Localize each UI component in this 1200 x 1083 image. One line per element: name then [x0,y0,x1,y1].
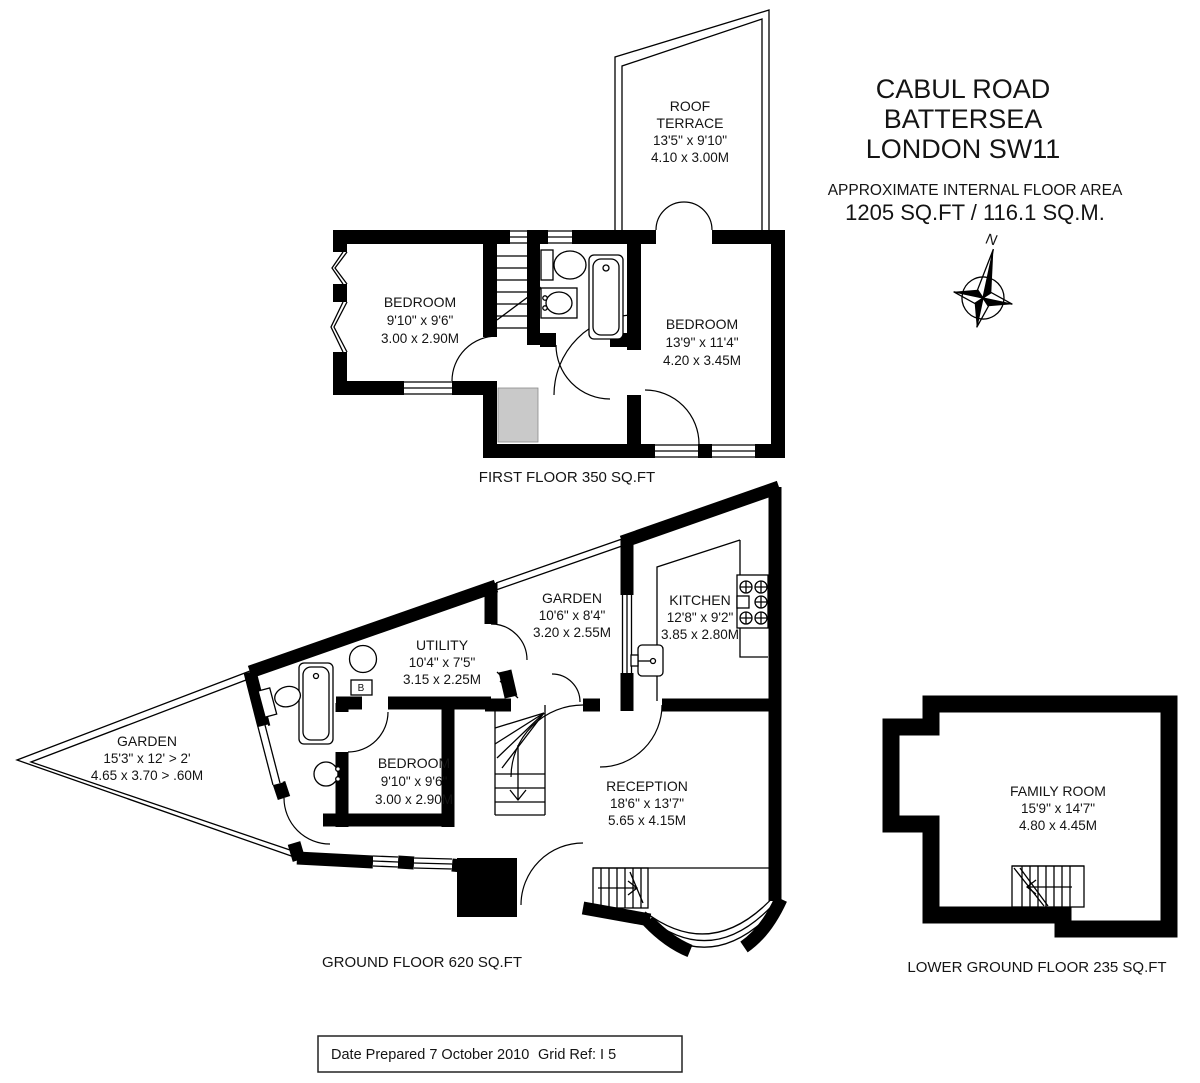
ground-floor-caption: GROUND FLOOR 620 SQ.FT [322,954,522,971]
room-dim-metric: 3.85 x 2.80M [661,627,739,642]
door-arc [491,624,527,660]
lower-ground-stairs [1012,866,1084,907]
window-icon [655,445,698,457]
basin-icon [541,288,577,318]
compass-rose-icon: N [947,226,1026,333]
room-dim-imperial: 10'4" x 7'5" [409,655,476,670]
window-icon [258,725,280,785]
room-dim-imperial: 15'9" x 14'7" [1021,801,1095,816]
room-dim-metric: 3.00 x 2.90M [381,331,459,346]
toilet-icon [541,250,586,280]
toilet-icon [258,681,304,717]
boiler-label: B [358,683,365,694]
room-dim-imperial: 13'9" x 11'4" [665,335,738,350]
terrace-door-arc [684,202,712,230]
door-arc [600,705,662,767]
compass-north-label: N [984,231,998,250]
room-label: UTILITY [416,637,469,653]
bay-window [645,893,783,951]
room-label: RECEPTION [606,778,688,794]
utility-detail: B [350,646,377,696]
sink-icon [631,645,663,676]
window-icon [548,231,572,243]
floorplan-drawing: CABUL ROAD BATTERSEA LONDON SW11 APPROXI… [0,0,1200,1083]
ground-floor-plan: B GARDEN 15'3" x 12' > 2' 4.65 x 3.70 > … [17,487,783,971]
room-dim-imperial: 12'8" x 9'2" [667,610,734,625]
room-label: GARDEN [542,590,602,606]
door-arc [521,843,583,905]
boiler-icon: B [351,680,372,695]
address-line-1: CABUL ROAD [876,74,1051,104]
room-label: ROOF [670,98,710,114]
room-dim-metric: 5.65 x 4.15M [608,813,686,828]
first-floor-plan: ROOF TERRACE 13'5" x 9'10" 4.10 x 3.00M … [331,10,785,486]
lower-ground-floor-plan: FAMILY ROOM 15'9" x 14'7" 4.80 x 4.45M L… [891,704,1169,976]
grid-ref: Grid Ref: I 5 [538,1047,616,1063]
date-prepared: Date Prepared 7 October 2010 [331,1047,529,1063]
room-dim-metric: 4.80 x 4.45M [1019,818,1097,833]
stove-icon [737,575,768,628]
room-dim-metric: 3.00 x 2.90M [375,792,453,807]
room-dim-imperial: 9'10" x 9'6" [381,774,448,789]
room-dim-metric: 3.20 x 2.55M [533,625,611,640]
room-dim-imperial: 15'3" x 12' > 2' [103,751,190,766]
room-dim-metric: 3.15 x 2.25M [403,672,481,687]
lower-ground-caption: LOWER GROUND FLOOR 235 SQ.FT [907,959,1166,976]
room-label: BEDROOM [384,294,456,310]
window-icon [404,382,452,394]
address-line-2: BATTERSEA [884,104,1043,134]
room-label: BEDROOM [666,316,738,332]
door-arc [552,674,580,702]
bathtub-icon [299,663,333,744]
room-dim-metric: 4.10 x 3.00M [651,150,729,165]
floor-area-value: 1205 SQ.FT / 116.1 SQ.M. [845,200,1105,225]
floorplan-page: CABUL ROAD BATTERSEA LONDON SW11 APPROXI… [0,0,1200,1083]
room-dim-imperial: 18'6" x 13'7" [610,796,684,811]
room-label: FAMILY ROOM [1010,783,1106,799]
room-label: BEDROOM [378,755,450,771]
door-arc [348,712,388,752]
address-line-3: LONDON SW11 [866,134,1061,164]
washing-machine-icon [350,646,377,673]
door-arc [556,345,610,399]
courtyard-fence [496,539,622,590]
floor-area-label: APPROXIMATE INTERNAL FLOOR AREA [828,182,1123,199]
stairs-to-lower-ground [593,868,770,908]
room-label: KITCHEN [669,592,730,608]
door-arc [511,705,583,777]
room-dim-imperial: 10'6" x 8'4" [539,608,606,623]
room-label: TERRACE [657,115,724,131]
porch-wall [457,858,517,917]
room-label: GARDEN [117,733,177,749]
first-floor-bathroom [541,250,623,339]
window-icon [373,855,398,868]
header: CABUL ROAD BATTERSEA LONDON SW11 APPROXI… [828,74,1123,334]
first-floor-caption: FIRST FLOOR 350 SQ.FT [479,469,655,486]
window-icon [510,231,527,243]
window-icon [414,857,452,870]
landing-area [498,388,538,442]
ground-floor-stairs [495,705,545,815]
bathtub-icon [589,255,623,339]
room-dim-metric: 4.65 x 3.70 > .60M [91,768,203,783]
room-dim-imperial: 9'10" x 9'6" [387,313,454,328]
terrace-door-arc [656,202,684,230]
room-dim-metric: 4.20 x 3.45M [663,353,741,368]
door-arc [645,390,699,444]
room-dim-imperial: 13'5" x 9'10" [653,133,727,148]
window-icon [712,445,755,457]
footer: Date Prepared 7 October 2010 Grid Ref: I… [318,1036,682,1072]
